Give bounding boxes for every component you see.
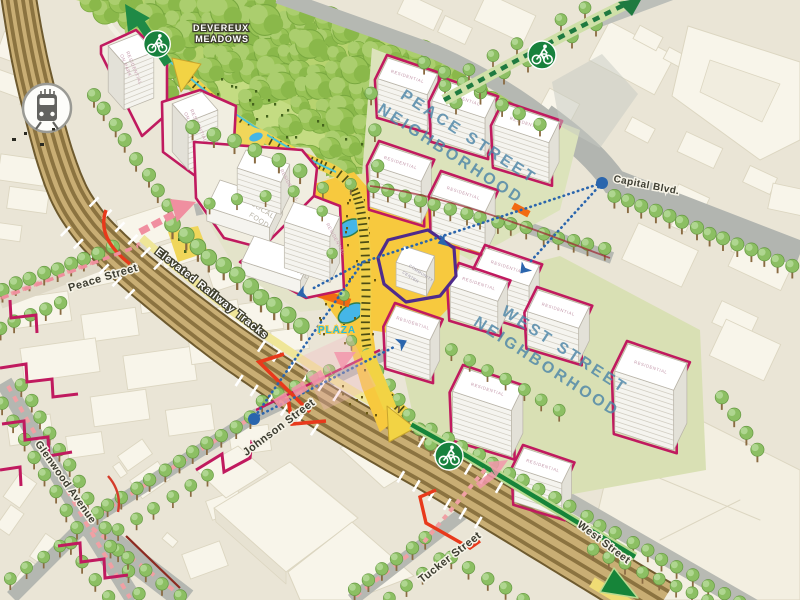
svg-text:PLAZA: PLAZA — [318, 325, 356, 336]
svg-text:MEADOWS: MEADOWS — [195, 34, 249, 44]
svg-text:DEVEREUX: DEVEREUX — [193, 23, 249, 33]
